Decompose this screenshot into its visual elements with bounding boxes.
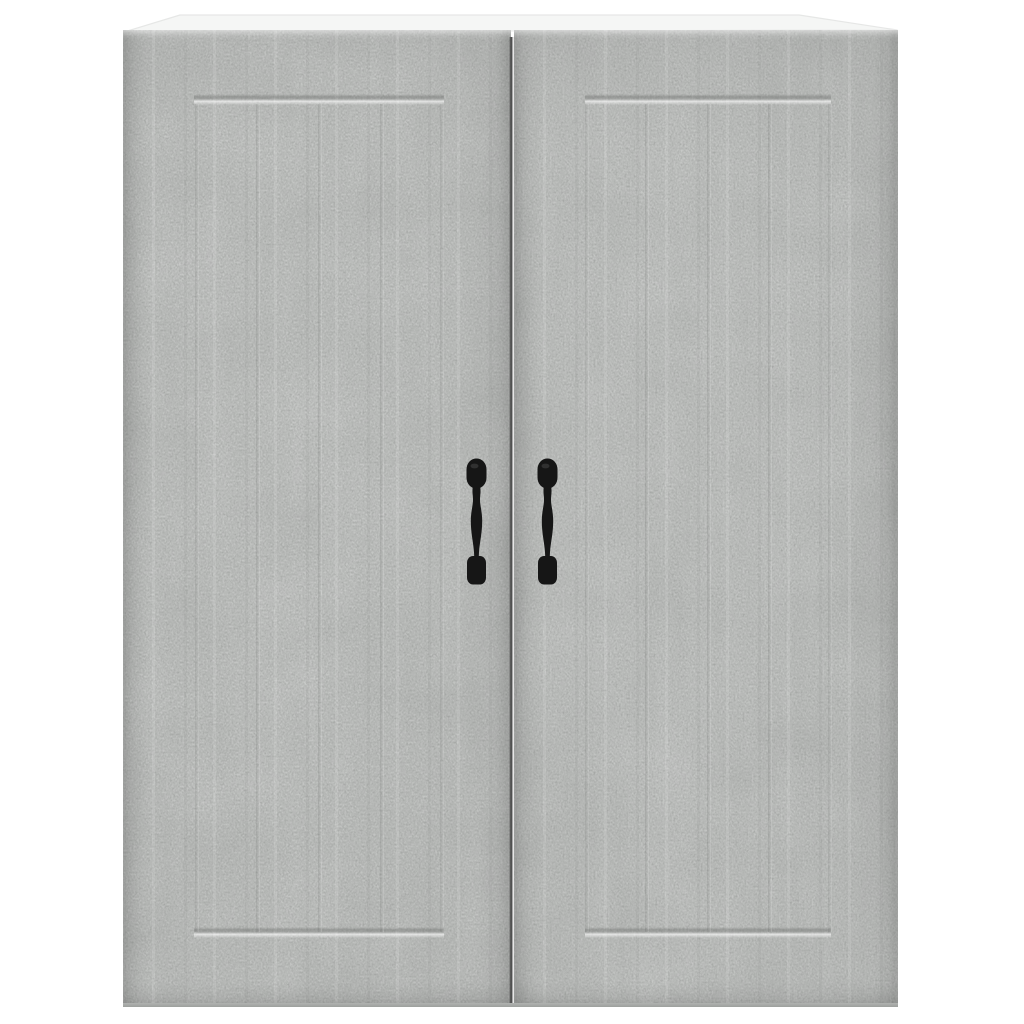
left-door-edge-shading xyxy=(123,30,511,1007)
handle-stem xyxy=(471,480,482,559)
right-door-handle xyxy=(535,458,560,585)
wall-cabinet xyxy=(123,12,898,1007)
handle-stem xyxy=(542,480,553,559)
right-door xyxy=(514,30,898,1007)
handle-bottom-knob xyxy=(538,556,557,585)
handle-knob-highlight xyxy=(542,464,550,469)
cabinet-doors xyxy=(123,30,898,1007)
left-door xyxy=(123,30,511,1007)
handle-bottom-knob xyxy=(467,556,486,585)
cabinet-bottom-edge xyxy=(123,1003,898,1007)
handle-knob-highlight xyxy=(471,464,479,469)
product-photo-canvas xyxy=(0,0,1024,1024)
right-door-edge-shading xyxy=(514,30,898,1007)
left-door-handle xyxy=(464,458,489,585)
door-gap xyxy=(509,37,514,1007)
